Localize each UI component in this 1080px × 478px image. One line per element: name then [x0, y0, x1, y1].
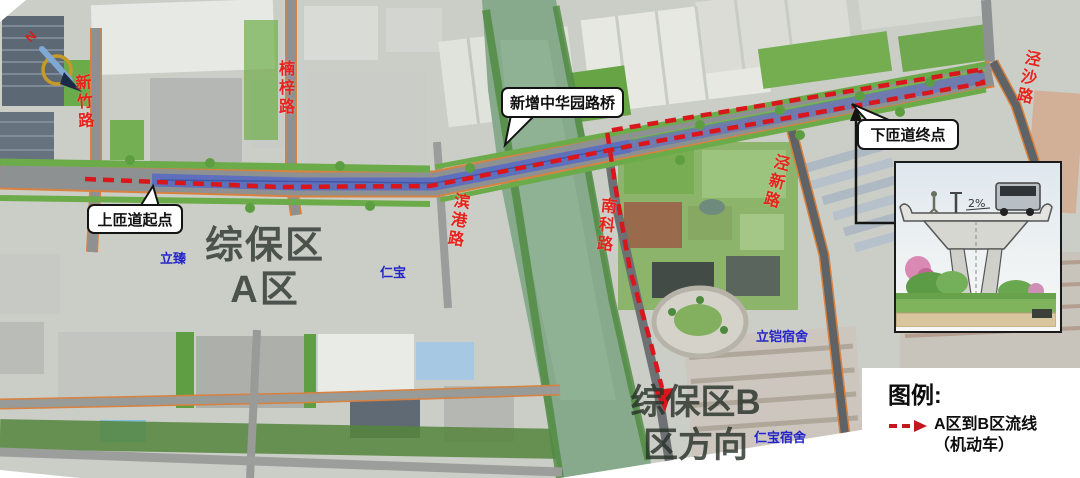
slope-label: 2% [968, 197, 985, 210]
legend-item-line1: A区到B区流线 [934, 414, 1037, 435]
legend-item-line2: （机动车） [934, 435, 1037, 456]
map-canvas: N 2% [0, 0, 1080, 478]
route-dashed-arrow-icon [888, 419, 928, 433]
callout-ramp-start: 上匝道起点 [87, 204, 183, 234]
callout-ramp-end: 下匝道终点 [857, 119, 959, 150]
bridge-section-drawing: 2% [896, 163, 1056, 327]
bridge-cross-section-inset: 2% [894, 161, 1062, 333]
legend-panel: 图例: A区到B区流线 （机动车） [862, 368, 1080, 478]
legend-title: 图例: [888, 376, 942, 410]
circular-plaza [654, 288, 746, 356]
legend-item: A区到B区流线 （机动车） [888, 414, 1037, 456]
callout-new-bridge: 新增中华园路桥 [501, 87, 624, 118]
farmland [618, 142, 798, 310]
